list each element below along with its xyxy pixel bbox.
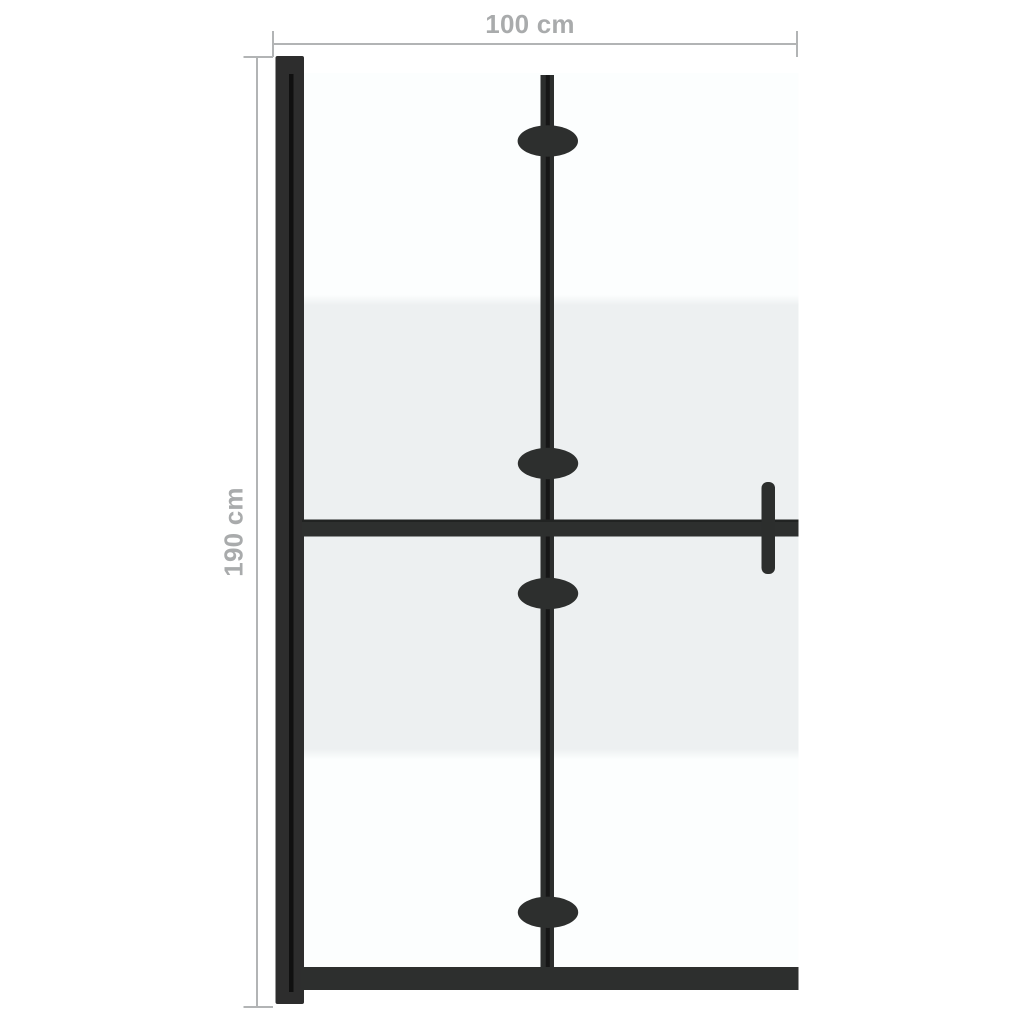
svg-text:100 cm: 100 cm (485, 9, 574, 39)
svg-text:190 cm: 190 cm (219, 487, 249, 576)
